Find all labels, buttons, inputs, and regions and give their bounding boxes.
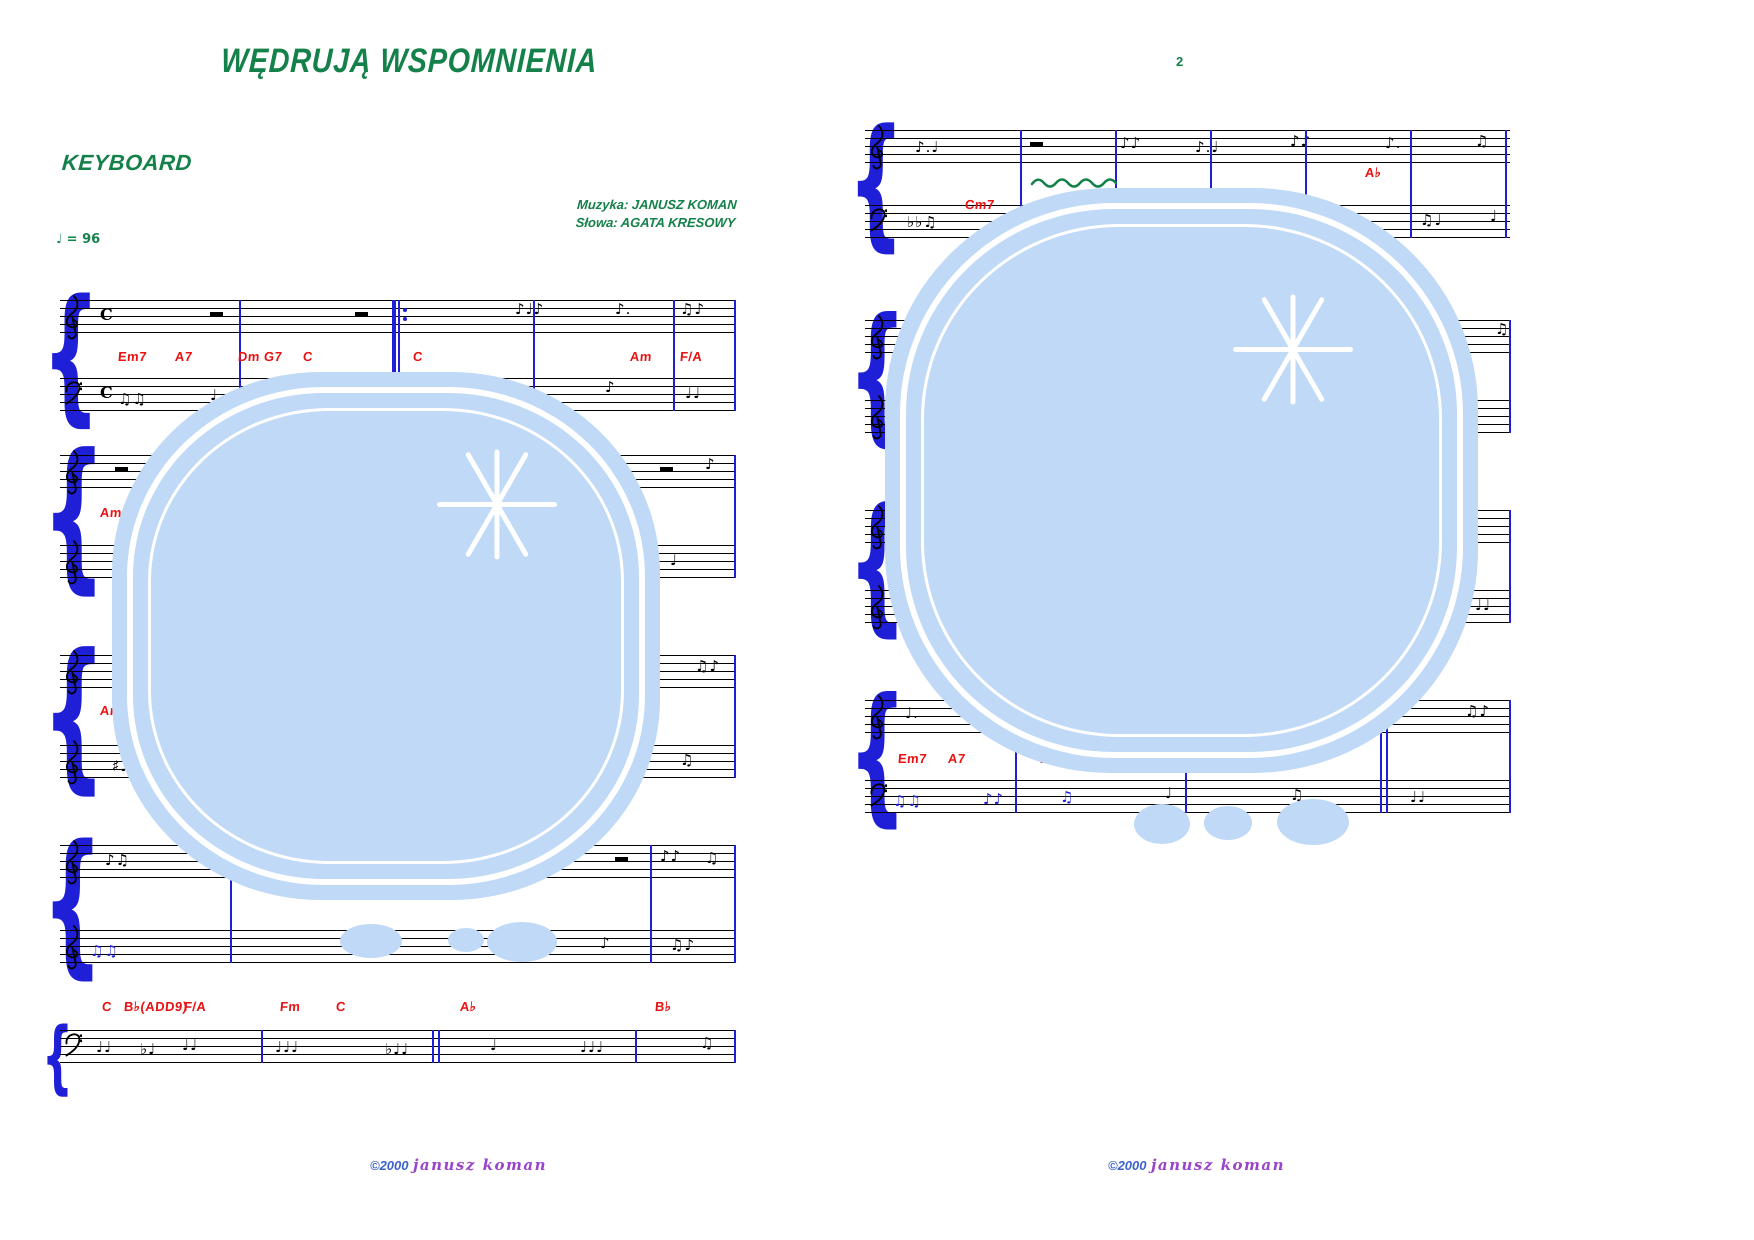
sheet-music-spread: WĘDRUJĄ WSPOMNIENIA KEYBOARD ♩ = 96 Muzy… [0, 0, 1754, 1240]
note-glyph: ♩ [1165, 786, 1173, 801]
copyright-line: ©2000 janusz koman [1108, 1156, 1285, 1175]
note-glyph: ♫♫ [893, 794, 922, 809]
copyright-year: ©2000 [1108, 1158, 1147, 1173]
chord-label: B♭ [654, 999, 672, 1015]
chord-label: A♭ [459, 999, 477, 1015]
page-number: 2 [1176, 54, 1183, 69]
note-glyph: ♪.♩ [1195, 140, 1219, 155]
chord-label: G7 [263, 349, 283, 364]
note-glyph: ♫ [1060, 790, 1074, 805]
stamp-overlay [112, 372, 660, 900]
barline [1505, 130, 1507, 238]
note-glyph: ♪♪ [983, 792, 1004, 807]
copyright-name: janusz koman [413, 1156, 547, 1174]
chord-label: F/A [679, 349, 703, 364]
note-glyph: ♩ [1490, 209, 1498, 224]
stamp-ellipse [1204, 806, 1252, 840]
note-glyph: ♩♩ [1410, 790, 1426, 805]
bass-clef-icon [868, 198, 887, 237]
treble-clef-icon [868, 313, 888, 366]
stamp-overlay [885, 188, 1478, 773]
barline [1410, 130, 1412, 238]
note-glyph: ♪. [1385, 136, 1401, 151]
staff-lines: ♫♫♪♪♫♩♫♩♩ [865, 780, 1510, 813]
note-glyph: ♪.♩ [915, 140, 939, 155]
note-glyph: ♫ [1475, 134, 1489, 149]
chord-label: Em7 [117, 349, 147, 364]
chord-label: Fm [279, 999, 301, 1014]
copyright-line: ©2000 janusz koman [370, 1156, 547, 1175]
chord-label: B♭(ADD9) [123, 999, 188, 1015]
note-glyph: ♪♪ [1120, 136, 1141, 151]
chord-label: C [335, 999, 346, 1014]
note-glyph: ♭♭♫ [907, 215, 938, 230]
note-glyph: ♪♪ [1290, 134, 1311, 149]
star-watermark-icon [1233, 290, 1353, 410]
chord-label: A7 [174, 349, 193, 364]
note-glyph: ♫♪ [1465, 704, 1490, 719]
star-watermark-icon [437, 445, 557, 565]
barline [1509, 510, 1511, 623]
treble-clef-icon [868, 123, 888, 176]
note-glyph: ♫ [1495, 322, 1509, 337]
copyright-year: ©2000 [370, 1158, 409, 1173]
note-glyph: ♩♩ [1475, 598, 1491, 613]
stamp-ellipse [448, 928, 484, 952]
chord-label: C [101, 999, 112, 1014]
chord-label: F/A [183, 999, 207, 1014]
stamp-ellipse [1134, 804, 1190, 844]
note-glyph: ♫♩ [1420, 213, 1443, 228]
chord-label: A♭ [1364, 165, 1382, 181]
chord-label: C [412, 349, 423, 364]
chord-label: Am [629, 349, 652, 364]
chord-label: A7 [947, 751, 966, 766]
note-glyph: ♩. [905, 706, 919, 721]
chord-label: Dm [237, 349, 260, 364]
stamp-ellipse [1277, 799, 1349, 845]
treble-clef-icon [868, 693, 888, 746]
stamp-ellipse [487, 922, 557, 962]
chord-label: C [302, 349, 313, 364]
rest-mark [1030, 142, 1043, 147]
barline [1509, 320, 1511, 433]
copyright-name: janusz koman [1151, 1156, 1285, 1174]
treble-clef-icon [868, 583, 888, 636]
staff-lines: ♪.♩♪♪♪.♩♪♪♪.♫ [865, 130, 1510, 163]
chord-label: Em7 [897, 751, 927, 766]
stamp-ellipse [340, 924, 402, 958]
chord-label: Cm7 [964, 197, 995, 212]
bass-clef-icon [868, 773, 887, 812]
barline [1509, 700, 1511, 813]
